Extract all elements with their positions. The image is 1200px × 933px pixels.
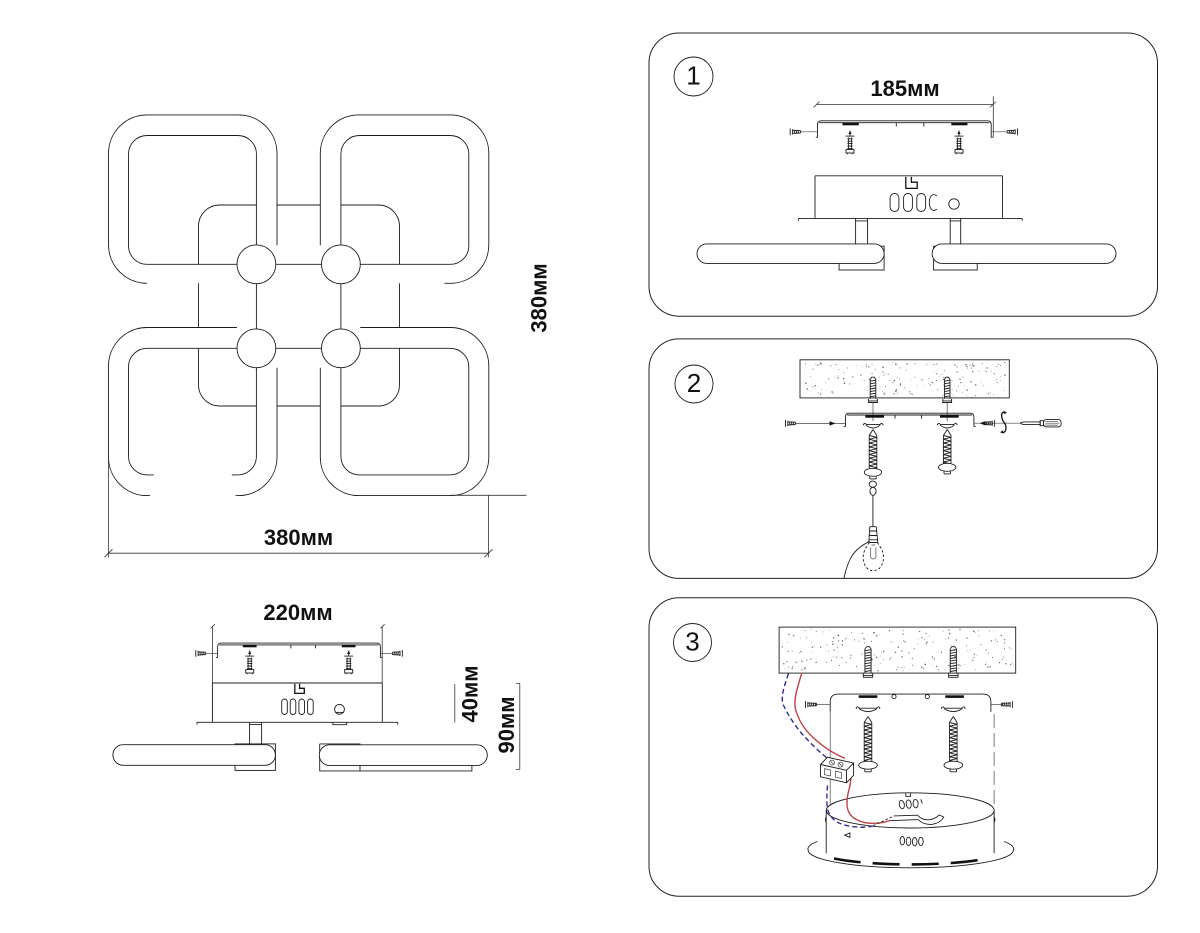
svg-text:90мм: 90мм xyxy=(494,696,519,753)
svg-text:220мм: 220мм xyxy=(263,600,332,625)
svg-text:2: 2 xyxy=(687,368,701,398)
svg-text:185мм: 185мм xyxy=(870,76,939,101)
svg-text:40мм: 40мм xyxy=(458,665,483,722)
svg-text:380мм: 380мм xyxy=(264,525,333,550)
svg-text:380мм: 380мм xyxy=(527,263,552,332)
svg-text:1: 1 xyxy=(686,61,700,91)
svg-text:3: 3 xyxy=(685,627,699,657)
